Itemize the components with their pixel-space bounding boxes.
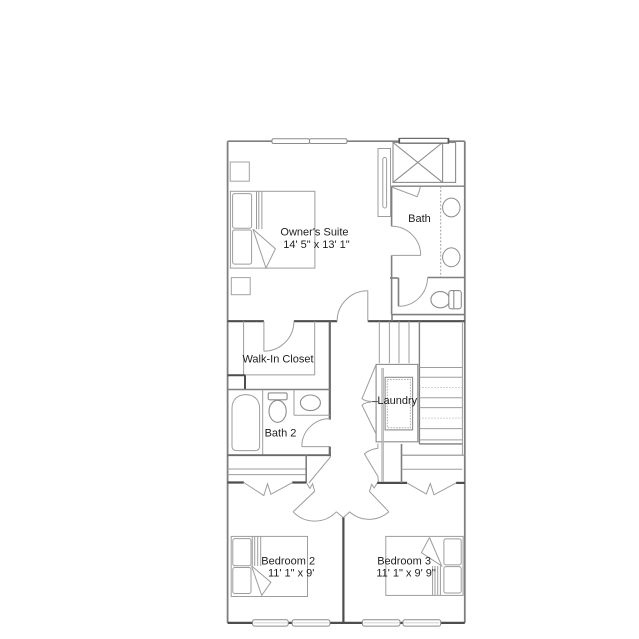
svg-text:Walk-In Closet: Walk-In Closet xyxy=(242,354,313,366)
svg-text:Bedroom 3: Bedroom 3 xyxy=(377,556,431,568)
svg-text:Bath: Bath xyxy=(408,213,431,225)
svg-text:Bath 2: Bath 2 xyxy=(265,428,297,440)
svg-text:11' 1" x 9': 11' 1" x 9' xyxy=(268,568,314,580)
svg-text:Owner's Suite: Owner's Suite xyxy=(280,227,348,239)
svg-text:Bedroom 2: Bedroom 2 xyxy=(261,556,315,568)
svg-text:11' 1" x 9' 9": 11' 1" x 9' 9" xyxy=(376,568,436,580)
svg-text:Laundry: Laundry xyxy=(377,395,417,407)
svg-text:14' 5" x 13' 1": 14' 5" x 13' 1" xyxy=(283,239,350,251)
